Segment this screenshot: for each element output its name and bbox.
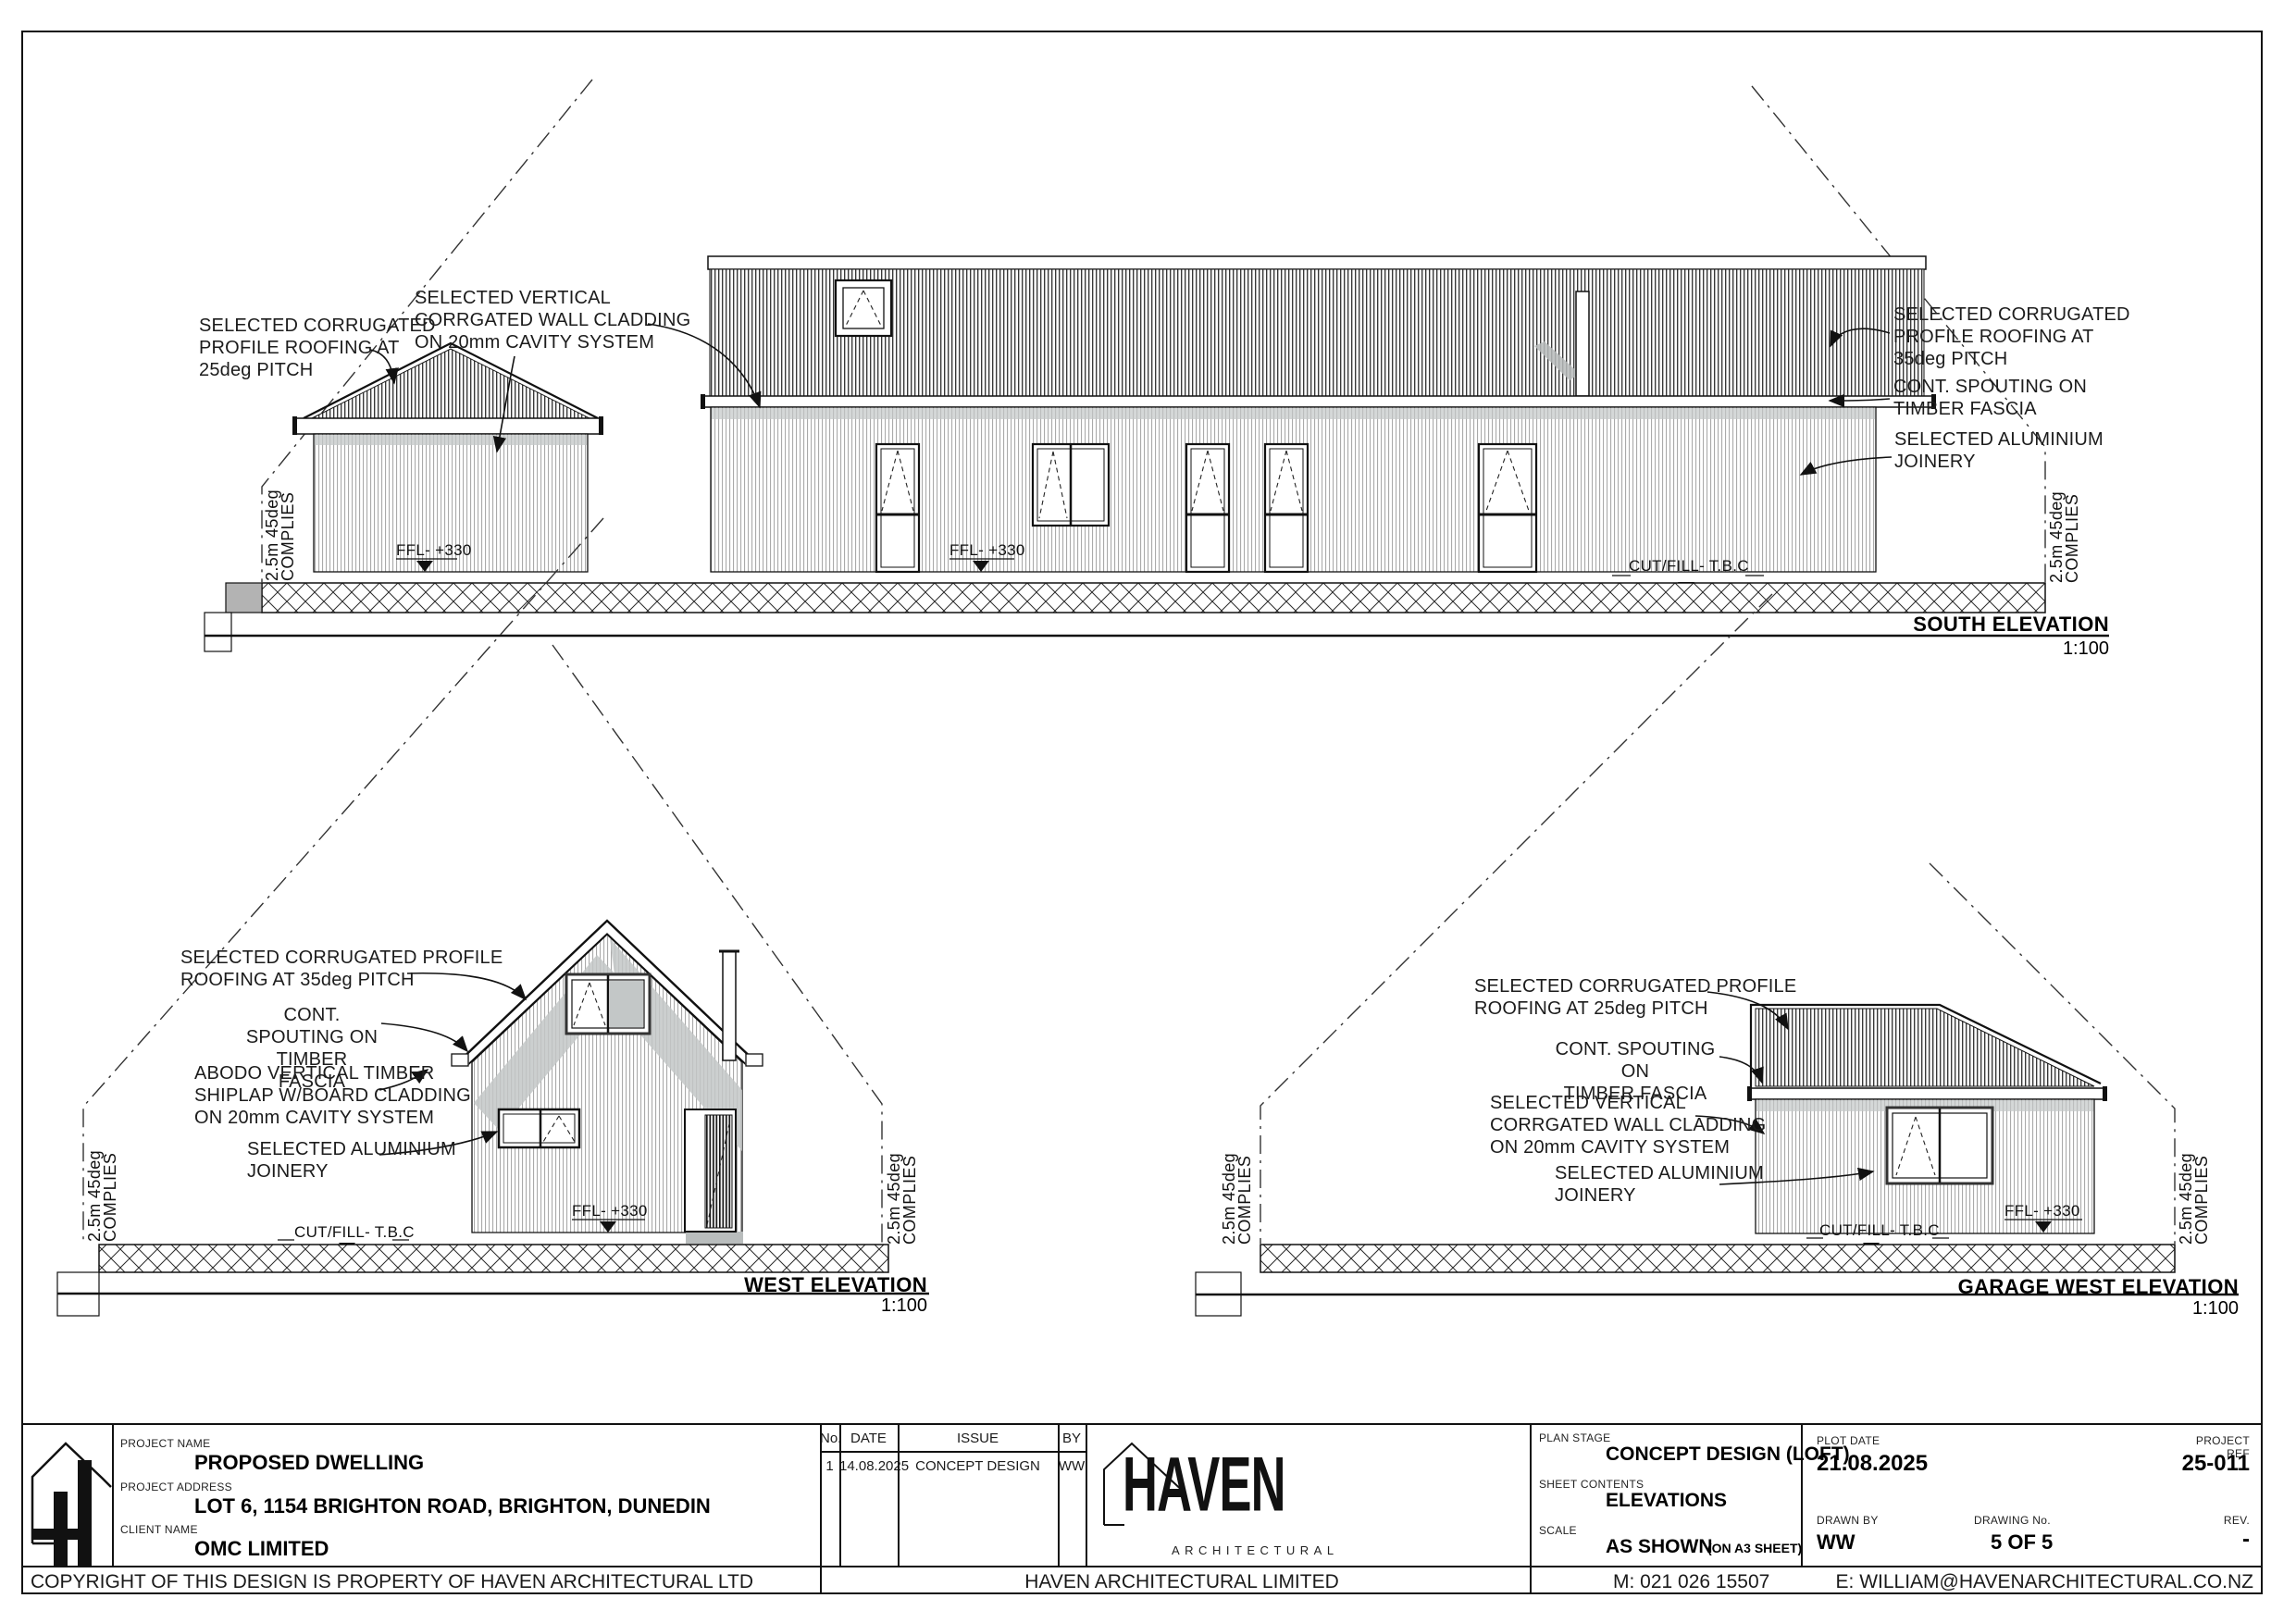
rev-label: REV. (2217, 1514, 2250, 1527)
note-joinery-south: SELECTED ALUMINIUM JOINERY (1894, 428, 2104, 473)
note-roof-25deg-garage: SELECTED CORRUGATED PROFILE ROOFING AT 2… (1474, 975, 1796, 1020)
cutfill-label: CUT/FILL- T.B.C (1629, 557, 1749, 576)
footer-bar: COPYRIGHT OF THIS DESIGN IS PROPERTY OF … (21, 1566, 2263, 1594)
note-roof-35deg-south: SELECTED CORRUGATED PROFILE ROOFING AT 3… (1893, 304, 2130, 370)
rev-row-by: WW (1058, 1458, 1086, 1474)
brand-tagline: ARCHITECTURAL (1172, 1543, 1339, 1557)
plot-date-value: 21.08.2025 (1817, 1451, 1928, 1477)
recession-label: 2.5m 45deg COMPLIES (887, 1153, 917, 1245)
note-spouting-south: CONT. SPOUTING ON TIMBER FASCIA (1893, 376, 2087, 420)
client-name-value: OMC LIMITED (194, 1537, 329, 1561)
copyright-text: COPYRIGHT OF THIS DESIGN IS PROPERTY OF … (31, 1571, 753, 1593)
rev-col-issue: ISSUE (898, 1431, 1058, 1446)
ffl-label: FFL- +330 (572, 1202, 648, 1220)
haven-house-logo (21, 1425, 112, 1567)
scale-note: (ON A3 SHEET) (1707, 1541, 1802, 1555)
south-elevation-drawing (205, 80, 2109, 651)
garage-west-elevation-scale: 1:100 (1850, 1298, 2239, 1319)
contact-mobile: M: 021 026 15507 (1613, 1571, 1769, 1593)
recession-label: 2.5m 45deg COMPLIES (2049, 491, 2079, 583)
project-address-label: PROJECT ADDRESS (120, 1481, 232, 1493)
window (1186, 444, 1229, 572)
ffl-label: FFL- +330 (396, 541, 472, 560)
project-address-value: LOT 6, 1154 BRIGHTON ROAD, BRIGHTON, DUN… (194, 1494, 711, 1518)
drawn-by-label: DRAWN BY (1817, 1514, 1879, 1527)
contact-email: E: WILLIAM@HAVENARCHITECTURAL.CO.NZ (1836, 1571, 2253, 1593)
garage-west-elevation-drawing (1196, 594, 2239, 1316)
note-wall-cladding-south: SELECTED VERTICAL CORRGATED WALL CLADDIN… (415, 287, 690, 353)
south-elevation-scale: 1:100 (1720, 638, 2109, 660)
rev-row-date: 14.08.2025 (839, 1458, 898, 1474)
note-joinery-garage: SELECTED ALUMINIUM JOINERY (1555, 1162, 1764, 1207)
drawing-no-value: 5 OF 5 (1991, 1530, 2053, 1555)
drawing-sheet: SELECTED CORRUGATED PROFILE ROOFING AT 2… (0, 0, 2296, 1623)
rev-row-no: 1 (820, 1458, 839, 1474)
gable-window (566, 974, 650, 1034)
garage-window (1887, 1108, 1992, 1183)
company-name-footer: HAVEN ARCHITECTURAL LIMITED (836, 1571, 1528, 1593)
rev-row-issue: CONCEPT DESIGN (898, 1458, 1058, 1474)
west-elevation-scale: 1:100 (539, 1295, 927, 1317)
client-name-label: CLIENT NAME (120, 1523, 198, 1536)
rev-col-no: No. (820, 1431, 839, 1446)
drawn-by-value: WW (1817, 1530, 1855, 1555)
roof-window (836, 280, 891, 336)
note-roof-25deg-south: SELECTED CORRUGATED PROFILE ROOFING AT 2… (199, 315, 436, 381)
note-roof-35deg-west: SELECTED CORRUGATED PROFILE ROOFING AT 3… (180, 947, 503, 991)
sheet-contents-value: ELEVATIONS (1606, 1490, 1727, 1512)
sheet-contents-label: SHEET CONTENTS (1539, 1478, 1644, 1491)
recession-label: 2.5m 45deg COMPLIES (2178, 1153, 2209, 1245)
drawing-no-label: DRAWING No. (1974, 1514, 2051, 1527)
brand-name: HAVEN (1123, 1440, 1285, 1529)
garage-west-elevation-title: GARAGE WEST ELEVATION (1850, 1275, 2239, 1299)
project-ref-value: 25-011 (2157, 1451, 2250, 1477)
scale-value: AS SHOWN (1606, 1536, 1713, 1558)
window (1265, 444, 1308, 572)
plan-stage-value: CONCEPT DESIGN (LOFT) (1606, 1443, 1850, 1466)
west-elevation-drawing (57, 518, 929, 1316)
scale-label: SCALE (1539, 1524, 1577, 1537)
rev-col-by: BY (1058, 1431, 1086, 1446)
note-joinery-west: SELECTED ALUMINIUM JOINERY (247, 1138, 456, 1183)
project-name-label: PROJECT NAME (120, 1437, 210, 1450)
cutfill-label: CUT/FILL- T.B.C (294, 1223, 415, 1242)
window (499, 1109, 579, 1147)
window (1479, 444, 1536, 572)
recession-label: 2.5m 45deg COMPLIES (1222, 1153, 1252, 1245)
rev-col-date: DATE (839, 1431, 898, 1446)
ffl-label: FFL- +330 (2004, 1202, 2080, 1220)
recession-label: 2.5m 45deg COMPLIES (265, 489, 295, 581)
south-elevation-title: SOUTH ELEVATION (1720, 613, 2109, 637)
title-block: PROJECT NAME PROPOSED DWELLING PROJECT A… (21, 1423, 2263, 1566)
rev-value: - (2194, 1527, 2250, 1553)
note-wall-cladding-garage: SELECTED VERTICAL CORRGATED WALL CLADDIN… (1490, 1092, 1766, 1158)
chimney (719, 951, 739, 1060)
window (1033, 444, 1109, 526)
note-abodo-cladding-west: ABODO VERTICAL TIMBER SHIPLAP W/BOARD CL… (194, 1062, 471, 1129)
plan-stage-label: PLAN STAGE (1539, 1431, 1610, 1444)
plot-date-label: PLOT DATE (1817, 1434, 1880, 1447)
entry-door (685, 1109, 743, 1244)
ffl-label: FFL- +330 (949, 541, 1025, 560)
window (876, 444, 919, 572)
recession-label: 2.5m 45deg COMPLIES (87, 1150, 118, 1242)
cutfill-label: CUT/FILL- T.B.C (1819, 1221, 1940, 1240)
west-elevation-title: WEST ELEVATION (539, 1273, 927, 1297)
project-name-value: PROPOSED DWELLING (194, 1451, 424, 1475)
